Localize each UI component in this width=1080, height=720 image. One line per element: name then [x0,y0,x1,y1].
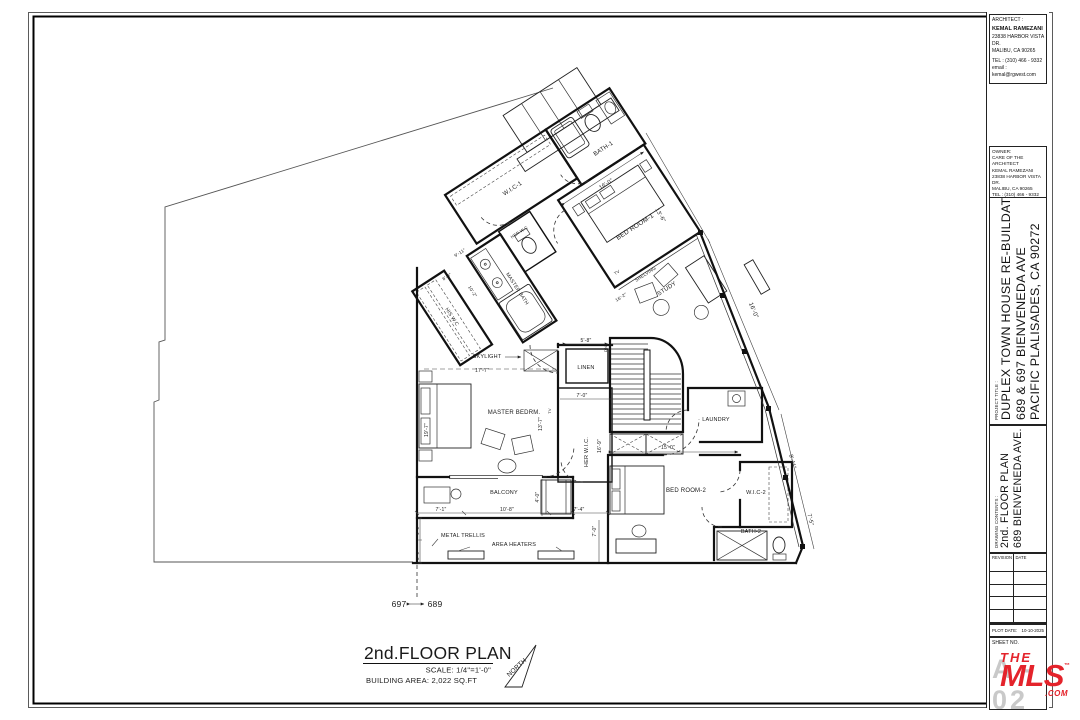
plan-label: AREA HEATERS [492,542,536,548]
architect-heading: ARCHITECT : [992,17,1044,24]
plan-scale: SCALE: 1/4"=1'-0" [426,666,491,675]
plan-title: 2nd.FLOOR PLAN [364,643,512,663]
plan-label: BATH-2 [741,529,761,535]
master-bedroom-furniture [419,371,533,473]
plan-label: HIS W.C [443,307,459,328]
plan-label: 15'-0" [661,445,675,451]
room-her-wc [499,212,556,272]
room-laundry [688,388,762,442]
shelving-line [619,238,698,289]
plan-label: 16'-0" [747,302,759,320]
owner-box: OWNER: CARE OF THE ARCHITECT KEMAL RAMEZ… [989,146,1047,201]
area-heater [538,551,574,559]
architect-name: KEMAL RAMEZANI [992,26,1044,34]
revision-table: REVISION DATE [989,553,1047,624]
floor-plan-drawing: W.I.C-1BATH-116'-0"BED ROOM-1HER W.CMAST… [0,0,1080,720]
plan-label: BED ROOM-2 [666,488,706,494]
plan-label: W.I.C-1 [502,181,524,198]
plan-label: 16'-9" [597,439,603,453]
dimension-lines [415,133,814,563]
wardrobe-wic1 [451,135,551,205]
parcel-689: 689 [428,599,443,609]
east-facade [696,230,805,563]
architect-box: ARCHITECT : KEMAL RAMEZANI 23838 HARBOR … [989,14,1047,84]
architect-address2: MALIBU, CA 90265 [992,48,1044,55]
plan-label: 19'-7" [424,423,430,437]
bedroom2-furniture [610,466,664,553]
stairs [610,338,683,454]
revision-row [990,585,1014,598]
plan-label: HER W.I.C. [584,437,590,467]
plan-area: BUILDING AREA: 2,022 SQ.FT [366,676,477,685]
revision-row [990,597,1014,610]
architect-email: email : kemal@rgwest.com [992,65,1044,79]
revision-row [990,610,1014,623]
contents-line2: 689 BIENVENEDA AVE. [1012,430,1025,548]
project-line1: DUPLEX TOWN HOUSE RE-BUILDAT: [999,200,1014,420]
plan-label: 4'-0" [415,525,420,535]
mls-logo: THE MLS™ .COM [1000,651,1068,698]
plan-label: MASTER BATH [504,272,529,307]
plan-label: BED ROOM-1 [615,212,655,241]
plan-label: 7'-4" [574,507,585,513]
parcel-split: 697 689 [392,565,443,609]
plan-label: TV [547,408,552,414]
plan-label: 10'-8" [500,507,514,513]
date-col-header: DATE [1014,554,1046,572]
door-swings [530,345,740,527]
plan-label: 4'-0" [535,492,541,503]
area-heater [448,551,484,559]
plan-label: 16'-2" [614,291,628,302]
plan-label: 17'-7" [475,368,489,374]
revision-row [990,572,1014,585]
plot-date-row: PLOT DATE: 10-10-2025 [989,624,1047,637]
revision-col-header: REVISION [990,554,1014,572]
wing-room-labels: W.I.C-1BATH-116'-0"BED ROOM-1HER W.CMAST… [407,127,698,400]
plot-date-value: 10-10-2025 [1022,628,1044,633]
plan-label: 13'-6" [653,207,666,223]
plan-label: MASTER BEDRM. [488,410,541,416]
plan-label: 7'-0" [592,526,598,537]
architect-address1: 23838 HARBOR VISTA DR. [992,34,1044,48]
plan-label: 10'-2" [467,285,478,299]
study-furniture [630,245,733,344]
title-block: ARCHITECT : KEMAL RAMEZANI 23838 HARBOR … [986,12,1049,708]
owner-care-of: CARE OF THE ARCHITECT [992,155,1044,167]
drawing-contents-box: DRAWING CONTENTS : 2nd. FLOOR PLAN 689 B… [989,425,1047,553]
plan-label: 7'-1" [436,507,447,513]
room-bedroom1 [558,145,700,288]
drawing-sheet: W.I.C-1BATH-116'-0"BED ROOM-1HER W.CMAST… [0,0,1080,720]
plan-label: 7'-5" [806,513,815,526]
plan-label: STUDY [657,281,678,298]
planter [744,260,770,294]
washer-icon [728,391,745,406]
plan-label: 7'-0" [577,393,588,399]
room-bedroom2 [608,455,740,563]
plan-label: 3'-0" [415,550,420,560]
plan-label: TV [613,269,621,276]
project-line3: PACIFIC PLALISADES, CA 90272 [1028,200,1043,420]
sheet-label: SHEET NO. [992,640,1044,646]
toilet-icon [773,537,785,553]
plan-label: BALCONY [490,490,518,496]
plan-label: 9'-11" [453,247,466,258]
contents-line1: 2nd. FLOOR PLAN [999,430,1012,548]
parcel-697: 697 [392,599,407,609]
plan-label: BATH-1 [593,140,615,157]
plot-date-label: PLOT DATE: [992,628,1017,633]
plan-label: LINEN [577,365,594,371]
plan-label: SKYLIGHT [473,354,502,360]
owner-address1: 23838 HARBOR VISTA DR. [992,174,1044,186]
plan-label: METAL TRELLIS [441,533,485,539]
mls-logo-mls: MLS™ [1000,664,1068,689]
plan-label: DN [603,346,608,352]
architect-tel: TEL : (310) 466 - 9332 [992,58,1044,65]
plan-label: 13'-7" [538,417,544,431]
project-title-box: PROJECT TITLE : DUPLEX TOWN HOUSE RE-BUI… [989,197,1047,425]
project-line2: 689 & 697 BIENVENEDA AVE [1014,200,1029,420]
plan-label: 5'-8" [581,338,592,344]
plan-title-block: 2nd.FLOOR PLAN SCALE: 1/4"=1'-0" BUILDIN… [363,643,536,687]
plan-label: LAUNDRY [702,417,730,423]
plan-label: W.I.C-2 [746,490,766,496]
